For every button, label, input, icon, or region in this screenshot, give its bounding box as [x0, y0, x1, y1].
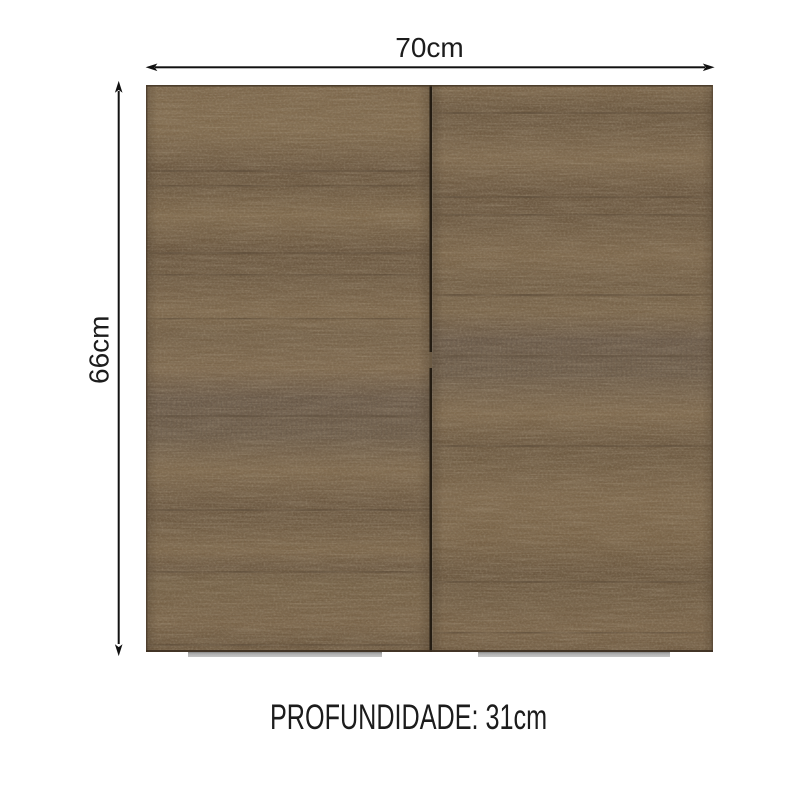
svg-text:PROFUNDIDADE: 31cm: PROFUNDIDADE: 31cm: [270, 698, 547, 737]
svg-text:66cm: 66cm: [84, 316, 115, 384]
svg-text:70cm: 70cm: [395, 32, 463, 63]
